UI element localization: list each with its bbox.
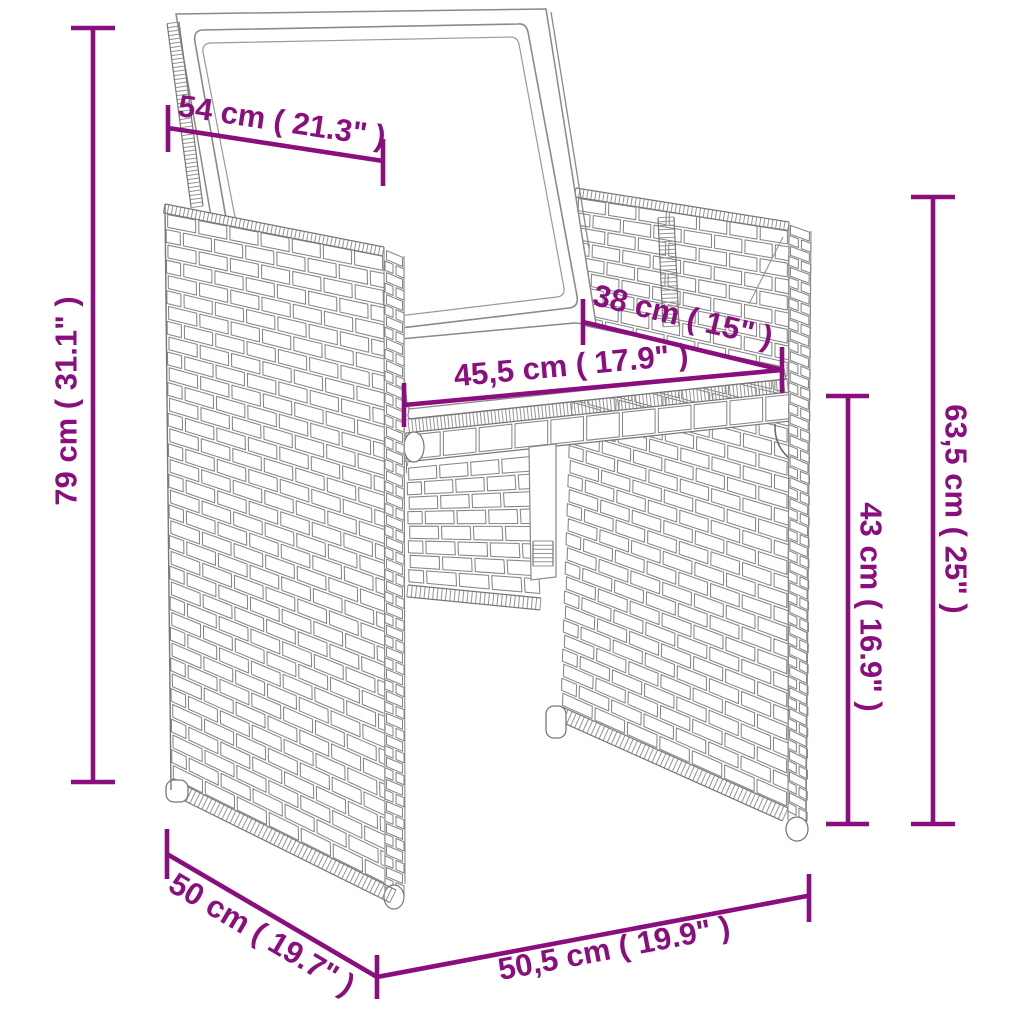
svg-text:63,5 cm ( 25" ): 63,5 cm ( 25" ) <box>939 404 974 613</box>
svg-text:43 cm ( 16.9" ): 43 cm ( 16.9" ) <box>854 502 889 711</box>
svg-text:79 cm ( 31.1" ): 79 cm ( 31.1" ) <box>49 296 84 505</box>
